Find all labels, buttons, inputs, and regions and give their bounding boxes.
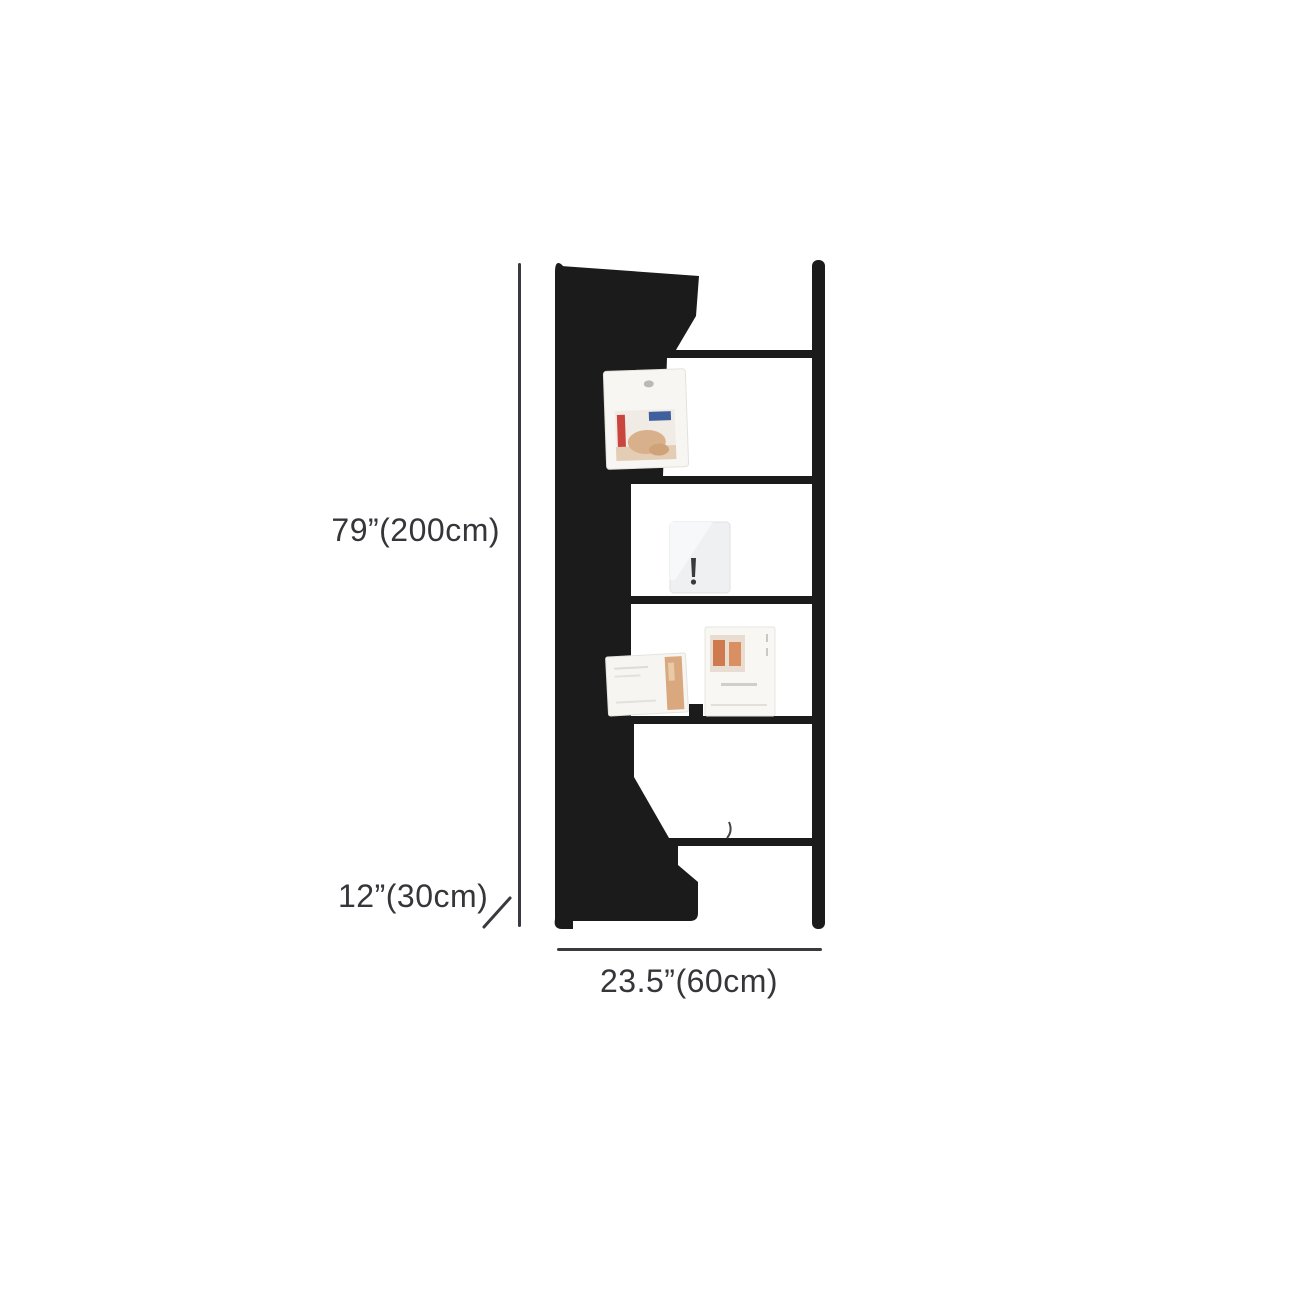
height-dimension-line bbox=[518, 263, 521, 927]
width-dimension-line bbox=[557, 948, 822, 951]
width-dimension-label: 23.5”(60cm) bbox=[589, 963, 789, 1000]
display-board bbox=[670, 522, 730, 593]
back-panel-6 bbox=[561, 846, 698, 921]
shelf-board-2 bbox=[561, 476, 825, 484]
magazine-right bbox=[705, 627, 775, 716]
bookshelf-figure bbox=[553, 258, 827, 930]
back-panel-1 bbox=[561, 266, 699, 355]
shelf-board-3 bbox=[561, 596, 825, 604]
shelf-board-1 bbox=[561, 350, 825, 358]
bookend bbox=[689, 704, 703, 716]
magazine-top bbox=[603, 369, 688, 470]
right-side-post bbox=[812, 260, 825, 929]
shelf-board-5 bbox=[561, 838, 825, 846]
diagram-canvas: 79”(200cm) 12”(30cm) 23.5”(60cm) bbox=[0, 0, 1300, 1300]
height-dimension-label: 79”(200cm) bbox=[300, 512, 500, 549]
magazine-left bbox=[606, 653, 689, 716]
back-panel-3 bbox=[561, 484, 631, 596]
shelf-board-4 bbox=[561, 716, 825, 724]
depth-dimension-label: 12”(30cm) bbox=[338, 878, 498, 915]
back-panel-5 bbox=[561, 724, 669, 838]
wire-decor bbox=[727, 822, 731, 838]
